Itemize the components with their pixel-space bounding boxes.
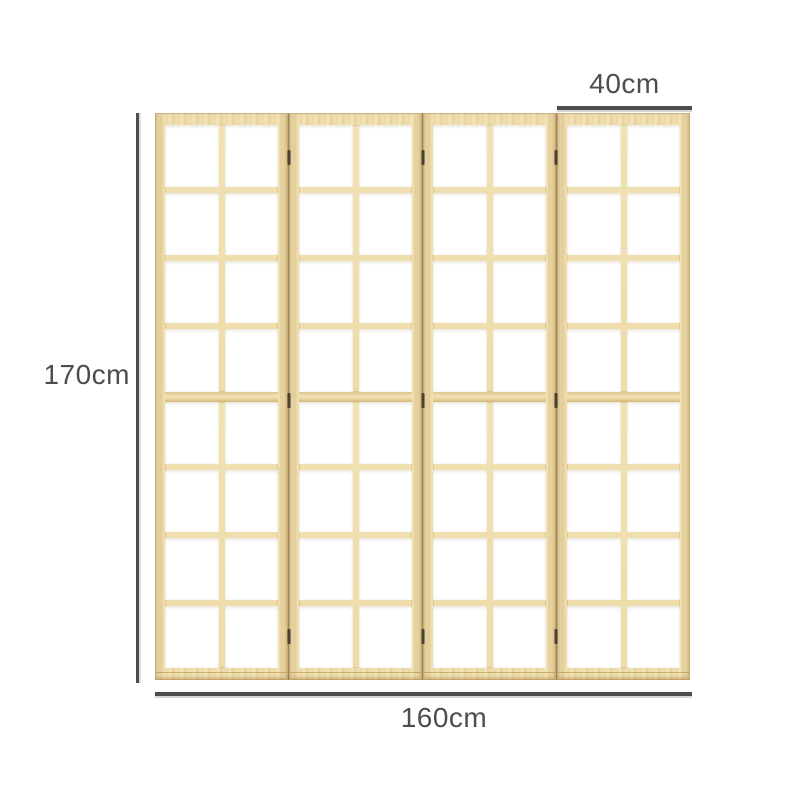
shoji-pane [567,606,621,668]
shoji-pane [299,329,353,391]
shoji-pane [627,470,681,532]
shoji-pane [627,329,681,391]
shoji-pane [225,193,279,255]
shoji-pane [627,538,681,600]
shoji-pane [299,125,353,187]
shoji-pane [493,402,547,464]
shoji-pane [433,606,487,668]
shoji-pane [299,402,353,464]
pane-grid-top [433,125,546,392]
divider-panel [556,113,690,680]
hinge [421,629,424,644]
shoji-pane [299,538,353,600]
hinge [287,393,290,408]
shoji-pane [567,329,621,391]
shoji-pane [359,125,413,187]
shoji-pane [433,125,487,187]
pane-grid-top [165,125,278,392]
shoji-pane [165,329,219,391]
panel-width-dimension-label: 40cm [557,70,692,98]
shoji-pane [493,538,547,600]
shoji-pane [225,538,279,600]
shoji-pane [433,402,487,464]
shoji-pane [165,402,219,464]
shoji-pane [493,193,547,255]
shoji-pane [627,261,681,323]
shoji-pane [359,470,413,532]
pane-grid-bottom [433,402,546,669]
shoji-pane [359,193,413,255]
shoji-pane [567,470,621,532]
shoji-pane [165,193,219,255]
shoji-pane [225,125,279,187]
shoji-pane [433,261,487,323]
divider-panel [288,113,422,680]
height-dimension-line [136,113,139,683]
shoji-pane [493,261,547,323]
shoji-pane [225,329,279,391]
hinge [287,629,290,644]
shoji-pane [299,470,353,532]
shoji-pane [433,193,487,255]
shoji-pane [567,193,621,255]
pane-grid-bottom [567,402,680,669]
shoji-pane [493,329,547,391]
hinge [287,150,290,165]
pane-grid-bottom [165,402,278,669]
shoji-pane [299,261,353,323]
shoji-pane [225,470,279,532]
shoji-pane [493,606,547,668]
shoji-pane [627,125,681,187]
shoji-pane [567,538,621,600]
shoji-pane [627,402,681,464]
shoji-pane [165,538,219,600]
hinge [555,150,558,165]
shoji-pane [567,125,621,187]
shoji-pane [165,125,219,187]
middle-rail [567,392,680,402]
shoji-pane [433,538,487,600]
shoji-pane [433,470,487,532]
room-divider-screen [155,113,690,680]
middle-rail [299,392,412,402]
shoji-pane [359,261,413,323]
shoji-pane [225,606,279,668]
pane-grid-top [299,125,412,392]
hinge [555,629,558,644]
height-dimension-label: 170cm [14,361,130,389]
total-width-dimension-label: 160cm [344,704,544,732]
shoji-pane [165,470,219,532]
hinge [555,393,558,408]
shoji-pane [299,193,353,255]
hinge [421,150,424,165]
hinge [421,393,424,408]
shoji-pane [567,261,621,323]
pane-grid-bottom [299,402,412,669]
middle-rail [165,392,278,402]
shoji-pane [493,470,547,532]
shoji-pane [225,261,279,323]
divider-panel [422,113,556,680]
shoji-pane [493,125,547,187]
shoji-pane [359,606,413,668]
shoji-pane [359,329,413,391]
shoji-pane [359,402,413,464]
panel-width-dimension-line [557,106,692,110]
shoji-pane [165,606,219,668]
shoji-pane [299,606,353,668]
shoji-pane [627,606,681,668]
shoji-pane [433,329,487,391]
product-dimension-diagram: 170cm 40cm 160cm [0,0,800,800]
shoji-pane [225,402,279,464]
pane-grid-top [567,125,680,392]
shoji-pane [627,193,681,255]
total-width-dimension-line [155,692,692,696]
middle-rail [433,392,546,402]
shoji-pane [165,261,219,323]
shoji-pane [567,402,621,464]
divider-panel [155,113,288,680]
shoji-pane [359,538,413,600]
